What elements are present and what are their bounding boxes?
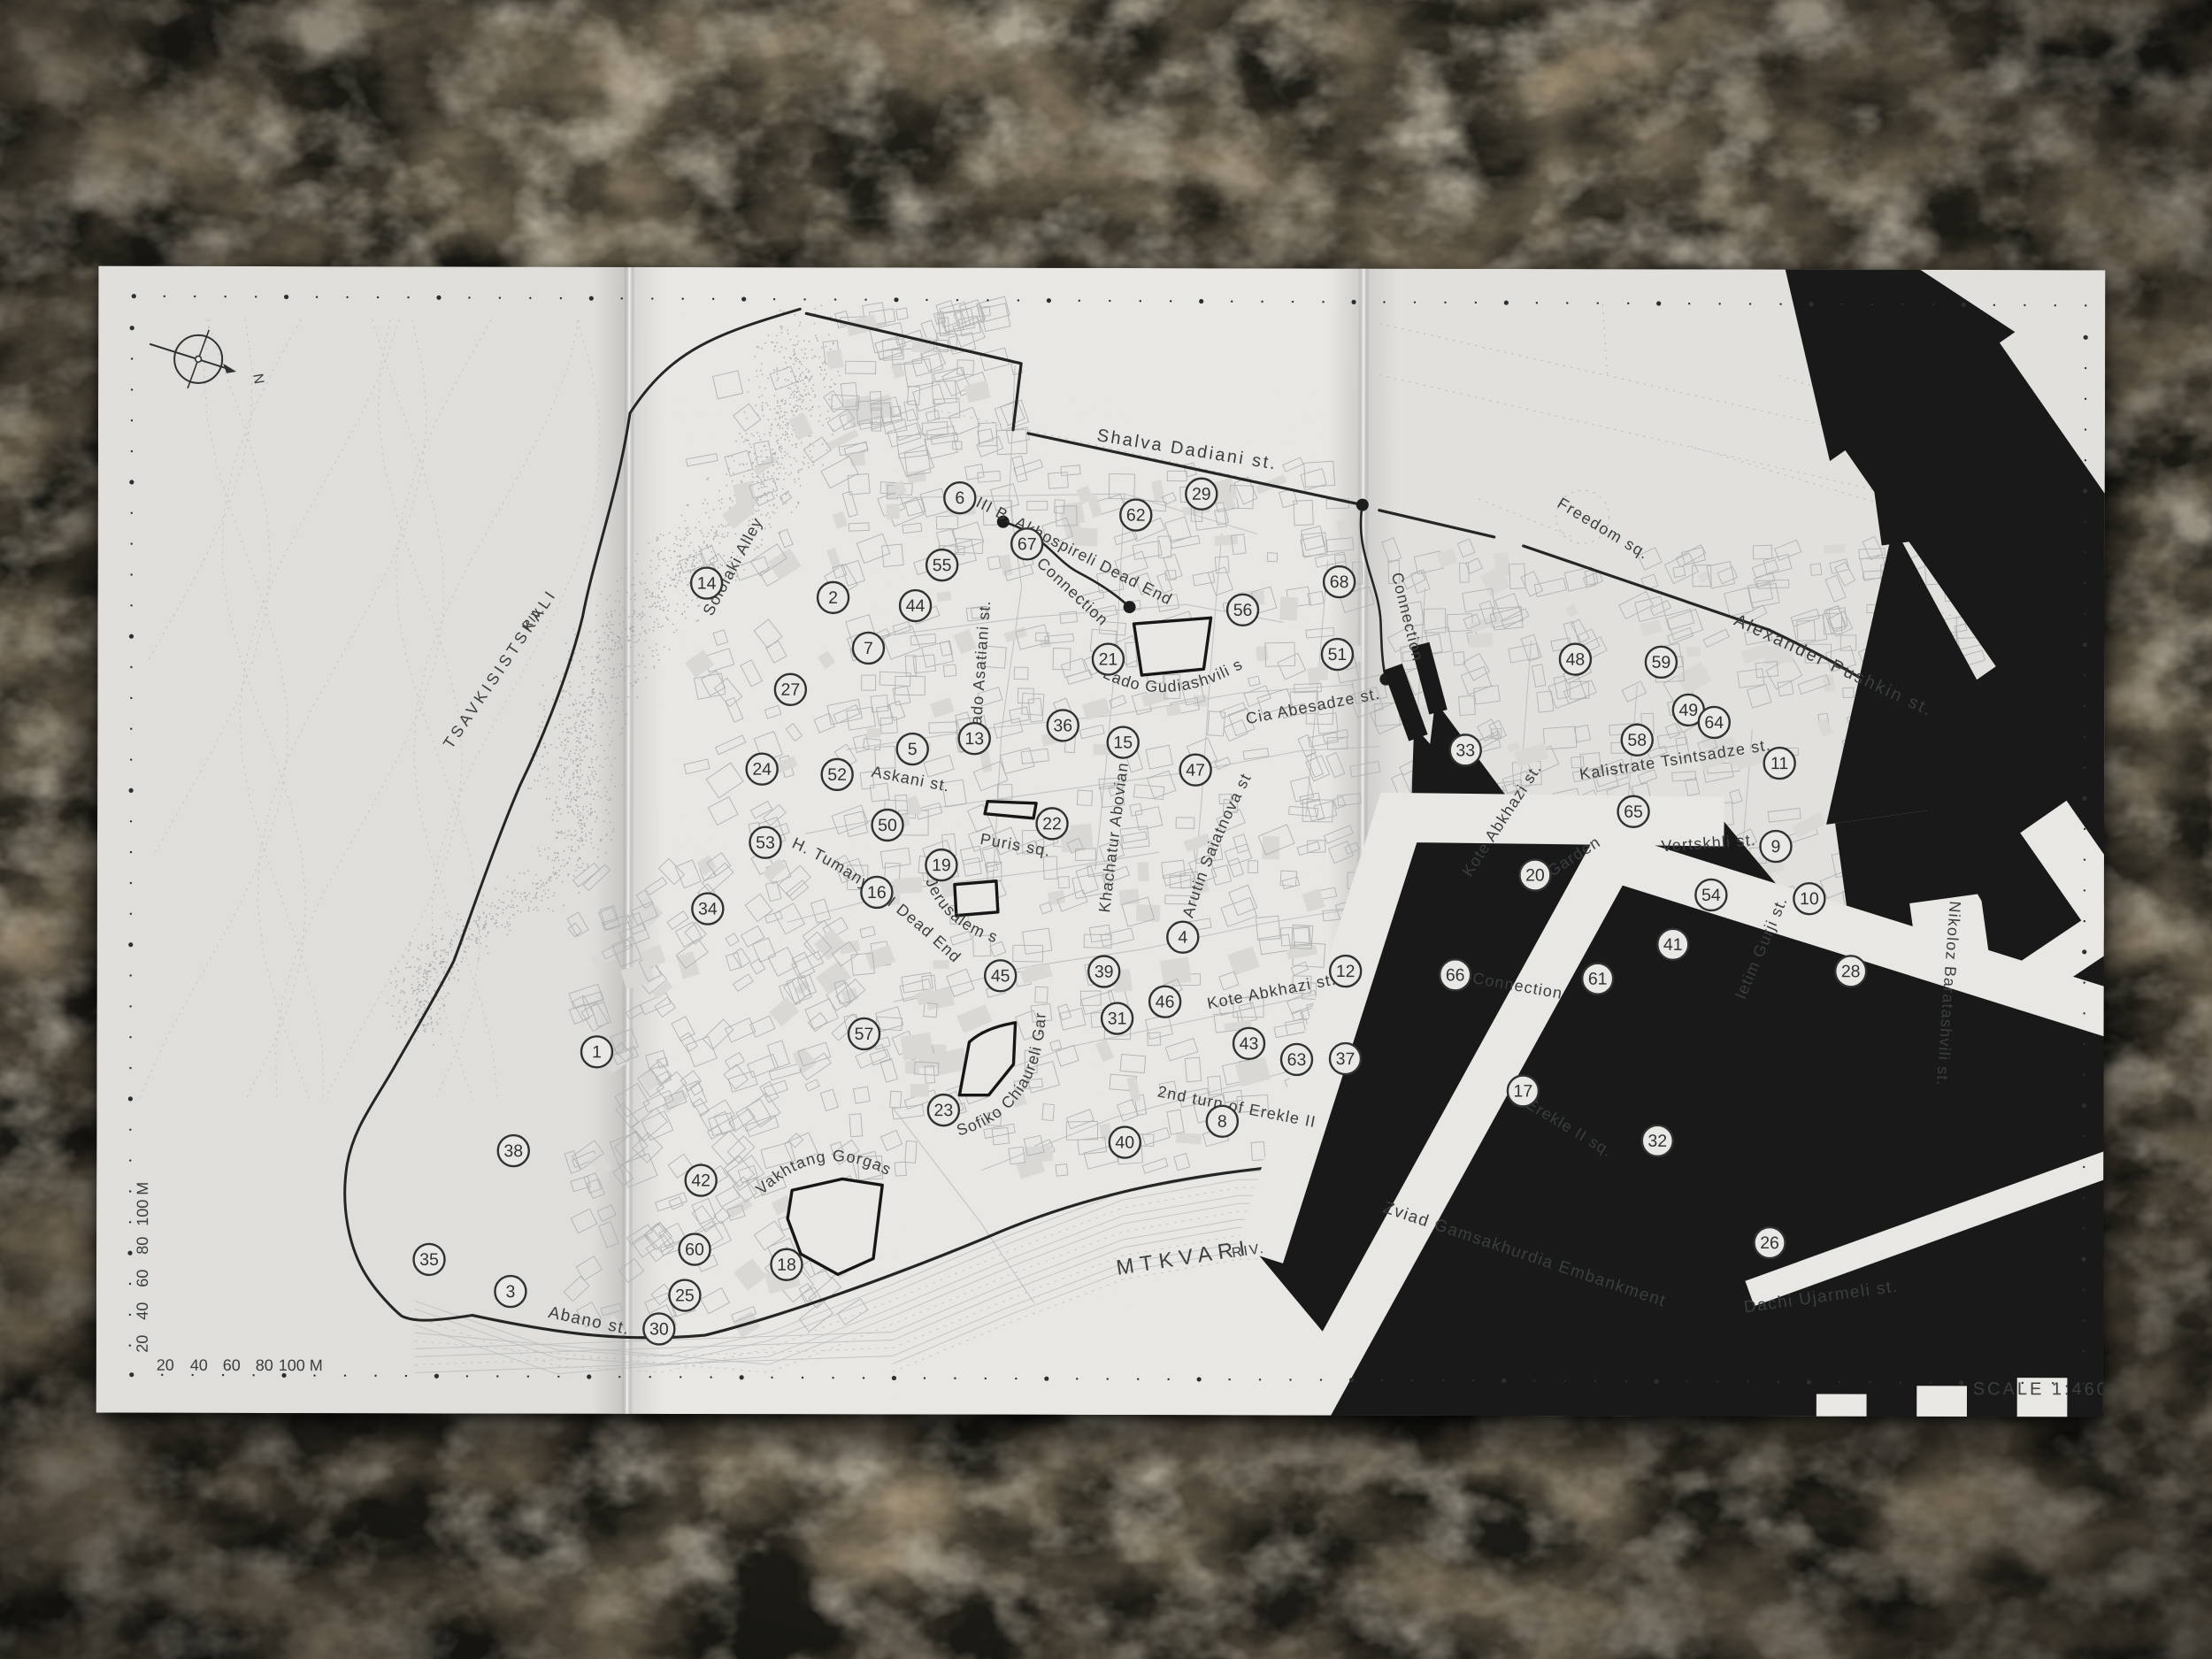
map-marker-36: 36	[1048, 710, 1079, 741]
map-marker-13: 13	[959, 723, 990, 754]
map-marker-61: 61	[1582, 964, 1613, 995]
map-marker-54: 54	[1695, 879, 1726, 910]
lado-gudiashvili-square-outline	[1133, 618, 1210, 675]
marker-number: 14	[697, 574, 717, 594]
marker-number: 17	[1514, 1081, 1533, 1101]
marker-number: 50	[878, 816, 897, 835]
map-marker-66: 66	[1440, 959, 1471, 990]
left-fold-panel-shade	[96, 266, 630, 1414]
map-marker-53: 53	[749, 827, 780, 858]
map-marker-55: 55	[926, 549, 957, 580]
marker-number: 31	[1108, 1010, 1127, 1029]
marker-number: 49	[1678, 701, 1698, 720]
map-marker-58: 58	[1622, 725, 1653, 756]
map-marker-52: 52	[822, 759, 853, 790]
map-marker-64: 64	[1699, 707, 1730, 738]
map-marker-21: 21	[1093, 643, 1124, 674]
photo-of-folded-city-map: { "colors":{"paper":"#e9e7e3","ink":"#34…	[0, 0, 2212, 1659]
map-marker-16: 16	[861, 877, 892, 908]
marker-number: 54	[1701, 886, 1721, 905]
map-marker-35: 35	[413, 1244, 444, 1275]
marker-number: 24	[752, 760, 772, 780]
marker-number: 2	[828, 588, 838, 608]
marker-number: 38	[503, 1141, 523, 1161]
marker-number: 25	[675, 1286, 695, 1305]
marker-number: 58	[1627, 731, 1647, 750]
map-marker-32: 32	[1642, 1125, 1673, 1156]
map-marker-48: 48	[1560, 644, 1591, 675]
marker-number: 30	[649, 1319, 669, 1339]
scalebar-h-value: 20	[157, 1356, 174, 1374]
map-marker-28: 28	[1835, 956, 1866, 987]
fold-crease-left	[592, 267, 665, 1414]
scalebar-h-value: 100 M	[279, 1356, 323, 1374]
scalebar-h-value: 80	[256, 1356, 273, 1374]
marker-number: 12	[1336, 962, 1356, 981]
map-marker-8: 8	[1207, 1106, 1238, 1137]
marker-number: 37	[1336, 1049, 1356, 1069]
marker-number: 28	[1841, 962, 1861, 981]
marker-number: 9	[1771, 837, 1781, 856]
map-marker-10: 10	[1793, 883, 1824, 914]
map-marker-2: 2	[818, 582, 849, 613]
map-marker-41: 41	[1657, 929, 1688, 960]
marker-number: 33	[1455, 741, 1475, 760]
map-marker-46: 46	[1149, 987, 1180, 1018]
marker-number: 46	[1156, 993, 1175, 1012]
marker-number: 13	[964, 729, 984, 749]
marker-number: 35	[419, 1250, 439, 1270]
scalebar-v-value: 60	[134, 1270, 151, 1287]
marker-number: 1	[592, 1042, 602, 1062]
marker-number: 34	[698, 900, 718, 919]
marker-number: 64	[1704, 713, 1724, 733]
folded-paper-map: Shalva Dadiani st.III B. Akhospireli Dea…	[96, 266, 2106, 1417]
map-marker-12: 12	[1330, 956, 1361, 987]
scalebar-v-value: 40	[134, 1302, 151, 1320]
map-marker-51: 51	[1322, 639, 1353, 670]
map-marker-23: 23	[928, 1094, 959, 1125]
map-marker-20: 20	[1519, 859, 1550, 890]
marker-number: 16	[867, 883, 887, 902]
map-marker-60: 60	[679, 1234, 710, 1265]
map-marker-67: 67	[1011, 528, 1042, 559]
marker-number: 10	[1800, 889, 1819, 909]
marker-number: 18	[777, 1256, 796, 1275]
map-marker-4: 4	[1167, 922, 1198, 953]
map-marker-26: 26	[1755, 1227, 1786, 1258]
marker-number: 3	[505, 1282, 515, 1302]
marker-number: 62	[1126, 506, 1146, 526]
map-marker-9: 9	[1760, 831, 1791, 862]
map-marker-7: 7	[853, 633, 884, 664]
scalebar-v-value: 20	[134, 1335, 151, 1353]
marker-number: 42	[691, 1171, 710, 1191]
marker-number: 45	[991, 966, 1010, 986]
marker-number: 60	[685, 1240, 704, 1260]
marker-number: 7	[864, 639, 873, 658]
marker-number: 66	[1446, 965, 1465, 985]
marker-number: 55	[933, 556, 952, 575]
map-marker-57: 57	[849, 1018, 879, 1049]
marker-number: 65	[1624, 803, 1643, 822]
map-marker-18: 18	[771, 1249, 802, 1280]
map-marker-19: 19	[926, 849, 956, 880]
marker-number: 4	[1178, 928, 1187, 948]
marker-number: 61	[1588, 970, 1608, 989]
map-marker-45: 45	[985, 960, 1016, 991]
marker-number: 63	[1287, 1050, 1307, 1070]
marker-number: 20	[1525, 866, 1545, 886]
map-marker-22: 22	[1037, 808, 1068, 839]
scalebar-v-value: 80	[134, 1237, 151, 1255]
marker-number: 68	[1330, 572, 1349, 592]
map-marker-50: 50	[872, 810, 903, 841]
marker-number: 59	[1652, 653, 1671, 672]
marker-number: 23	[933, 1101, 953, 1120]
marker-number: 8	[1217, 1112, 1227, 1132]
marker-number: 32	[1647, 1132, 1667, 1151]
marker-number: 22	[1042, 814, 1062, 833]
marker-number: 52	[827, 765, 847, 785]
map-marker-3: 3	[495, 1276, 526, 1307]
map-marker-17: 17	[1508, 1075, 1539, 1106]
map-marker-65: 65	[1618, 796, 1649, 827]
puris-square-outline	[985, 802, 1036, 818]
marker-number: 56	[1233, 601, 1253, 620]
marker-number: 51	[1328, 645, 1348, 664]
map-marker-44: 44	[900, 590, 931, 621]
marker-number: 6	[955, 488, 964, 508]
map-marker-63: 63	[1281, 1044, 1312, 1075]
marker-number: 11	[1770, 754, 1788, 773]
marker-number: 15	[1113, 733, 1133, 753]
marker-number: 27	[780, 680, 800, 700]
marker-number: 21	[1099, 649, 1118, 669]
map-marker-6: 6	[944, 482, 975, 513]
map-marker-27: 27	[775, 674, 806, 705]
marker-number: 39	[1094, 962, 1114, 981]
marker-number: 44	[906, 596, 926, 616]
marker-number: 29	[1192, 485, 1211, 504]
marker-number: 47	[1186, 761, 1205, 780]
map-marker-24: 24	[747, 754, 778, 785]
map-marker-33: 33	[1450, 734, 1481, 765]
map-marker-37: 37	[1330, 1043, 1361, 1074]
map-marker-25: 25	[669, 1279, 700, 1310]
marker-number: 53	[756, 833, 775, 853]
map-marker-59: 59	[1646, 647, 1677, 678]
marker-number: 19	[932, 856, 951, 875]
map-marker-42: 42	[686, 1165, 717, 1196]
map-marker-43: 43	[1233, 1028, 1264, 1059]
marker-number: 67	[1018, 534, 1037, 554]
map-marker-29: 29	[1186, 479, 1217, 510]
map-marker-68: 68	[1324, 566, 1355, 597]
marker-number: 41	[1663, 935, 1683, 955]
marker-number: 26	[1760, 1233, 1779, 1253]
marker-number: 40	[1115, 1133, 1134, 1153]
map-marker-11: 11	[1764, 748, 1795, 779]
marker-number: 48	[1566, 650, 1586, 670]
map-marker-39: 39	[1088, 956, 1119, 987]
scale-ratio-label: SCALE 1:4600	[1973, 1379, 2106, 1399]
map-marker-14: 14	[691, 568, 722, 599]
map-marker-5: 5	[897, 733, 928, 764]
map-marker-34: 34	[692, 894, 723, 925]
marker-number: 5	[908, 740, 918, 759]
marker-number: 43	[1240, 1034, 1259, 1054]
marker-number: 36	[1053, 716, 1072, 735]
map-marker-15: 15	[1108, 727, 1139, 758]
map-marker-31: 31	[1102, 1003, 1133, 1034]
scalebar-h-value: 60	[223, 1356, 241, 1374]
scalebar-v-value: 100 M	[134, 1182, 151, 1226]
map-marker-47: 47	[1180, 755, 1211, 786]
marker-number: 57	[855, 1025, 874, 1044]
scalebar-h-value: 40	[190, 1356, 208, 1374]
map-marker-30: 30	[643, 1313, 674, 1344]
map-marker-1: 1	[581, 1036, 612, 1067]
map-marker-62: 62	[1120, 500, 1151, 531]
map-marker-56: 56	[1227, 595, 1258, 626]
map-marker-40: 40	[1110, 1127, 1141, 1158]
map-marker-38: 38	[498, 1135, 529, 1166]
